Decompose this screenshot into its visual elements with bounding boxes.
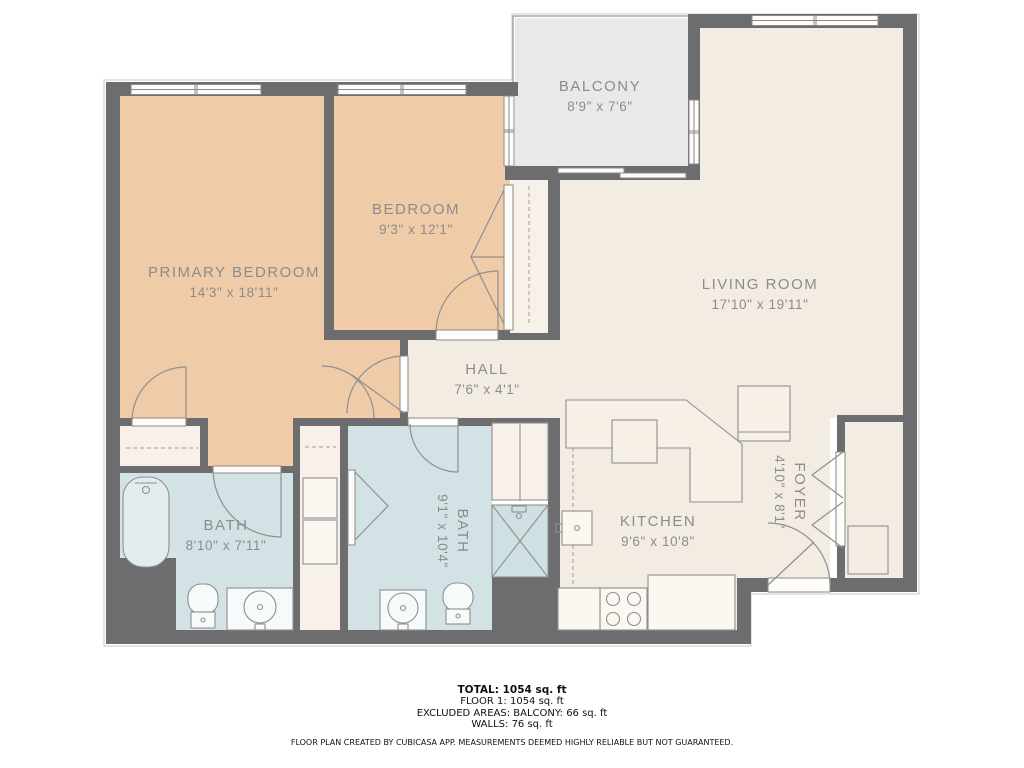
living-room-dims: 17'10" x 19'11" [711, 297, 808, 312]
primary-closet-door-opening [132, 418, 186, 426]
disclaimer: FLOOR PLAN CREATED BY CUBICASA APP. MEAS… [0, 738, 1024, 747]
bath2-closet-bifold-track [348, 470, 355, 545]
kitchen-label: KITCHEN [620, 513, 696, 530]
bedroom-window [338, 85, 466, 95]
floorplan-drawing: PRIMARY BEDROOM 14'3" x 18'11" BEDROOM 9… [0, 0, 1024, 768]
hall-cabinets [303, 478, 337, 564]
toilet-bath1 [188, 584, 218, 628]
entry-closet-box [848, 526, 888, 574]
foyer-closet-bifold-track [836, 452, 845, 546]
total-area: TOTAL: 1054 sq. ft [0, 684, 1024, 696]
living-room-window [752, 16, 878, 26]
walls-area: WALLS: 76 sq. ft [0, 719, 1024, 731]
bath1-label: BATH [204, 517, 249, 534]
stove [600, 588, 647, 630]
hall-dims: 7'6" x 4'1" [454, 382, 520, 397]
laundry-closet [492, 423, 548, 500]
primary-door-opening [400, 356, 408, 412]
kitchen-dims: 9'6" x 10'8" [621, 534, 695, 549]
foyer-label: FOYER [791, 462, 808, 521]
primary-closet-floor [118, 426, 202, 466]
balcony-dims: 8'9" x 7'6" [567, 99, 633, 114]
bath2-door-opening [408, 418, 458, 426]
area-summary: TOTAL: 1054 sq. ft FLOOR 1: 1054 sq. ft … [0, 684, 1024, 747]
bedroom-closet-bifold-track [504, 185, 513, 330]
primary-bedroom-window [131, 85, 261, 95]
bedroom-label: BEDROOM [372, 201, 460, 218]
sink-vanity-bath1 [227, 588, 293, 630]
entry-door-opening [768, 578, 830, 592]
hall-label: HALL [465, 361, 509, 378]
bath1-dims: 8'10" x 7'11" [186, 538, 267, 553]
balcony-label: BALCONY [559, 78, 641, 95]
living-room-label: LIVING ROOM [702, 276, 819, 293]
primary-bedroom-dims: 14'3" x 18'11" [190, 285, 279, 300]
foyer-dims: 4'10" x 8'1" [772, 455, 787, 529]
primary-bedroom-label: PRIMARY BEDROOM [148, 264, 320, 281]
bedroom-door-opening [436, 330, 498, 340]
refrigerator [738, 386, 790, 441]
bath2-label: BATH [454, 509, 471, 554]
bedroom-balcony-window [504, 96, 514, 166]
bath2-dims: 9'1" x 10'4" [435, 494, 450, 568]
bathtub [123, 477, 169, 567]
toilet-bath2 [443, 583, 473, 624]
bedroom-dims: 9'3" x 12'1" [379, 222, 453, 237]
balcony-side-window [689, 100, 699, 164]
living-room-floor-top [700, 28, 903, 180]
excluded-area: EXCLUDED AREAS: BALCONY: 66 sq. ft [0, 708, 1024, 720]
floor-area: FLOOR 1: 1054 sq. ft [0, 696, 1024, 708]
floorplan-page: PRIMARY BEDROOM 14'3" x 18'11" BEDROOM 9… [0, 0, 1024, 768]
sink-vanity-bath2 [380, 590, 426, 630]
bath1-door-opening [213, 466, 281, 473]
shower [492, 505, 548, 577]
